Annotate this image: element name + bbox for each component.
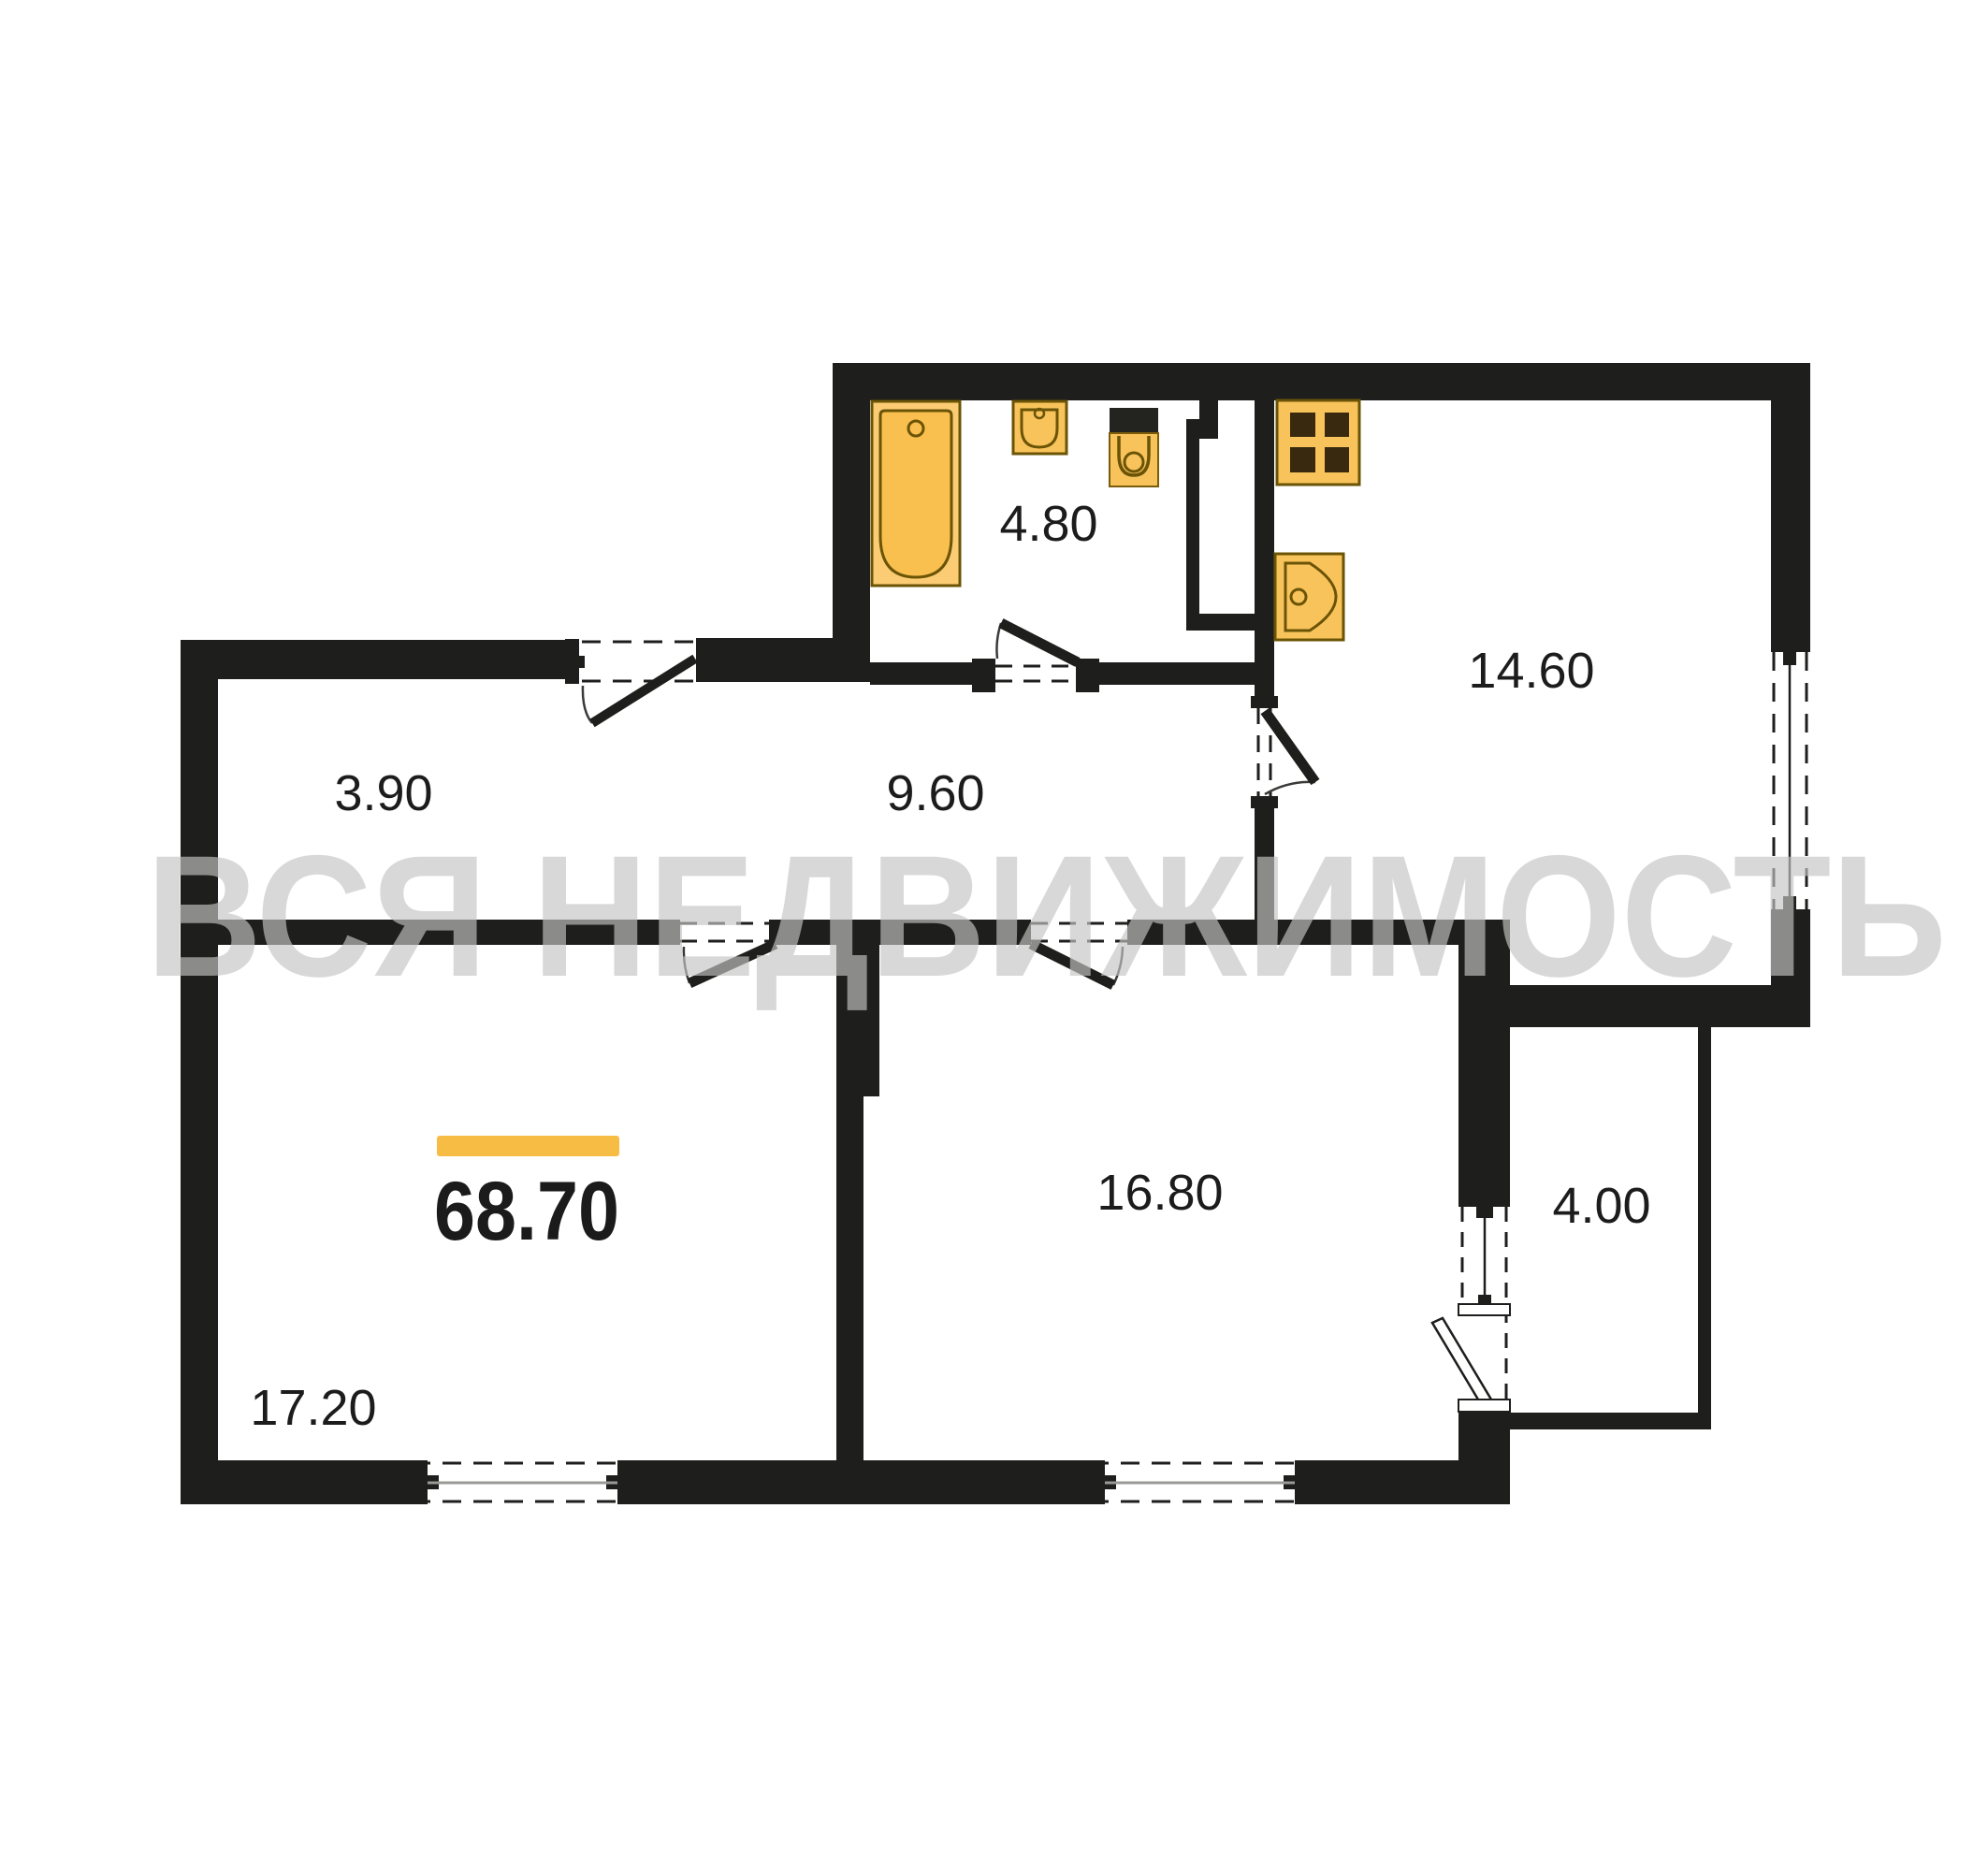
svg-text:14.60: 14.60 bbox=[1468, 643, 1594, 699]
svg-text:3.90: 3.90 bbox=[334, 765, 432, 821]
svg-text:ВСЯ НЕДВИЖИМОСТЬ: ВСЯ НЕДВИЖИМОСТЬ bbox=[146, 819, 1947, 1012]
svg-text:9.60: 9.60 bbox=[886, 765, 984, 821]
svg-text:16.80: 16.80 bbox=[1096, 1165, 1223, 1221]
svg-text:4.80: 4.80 bbox=[999, 496, 1097, 552]
svg-text:68.70: 68.70 bbox=[434, 1164, 619, 1257]
svg-text:4.00: 4.00 bbox=[1552, 1178, 1650, 1234]
svg-text:17.20: 17.20 bbox=[250, 1380, 376, 1436]
